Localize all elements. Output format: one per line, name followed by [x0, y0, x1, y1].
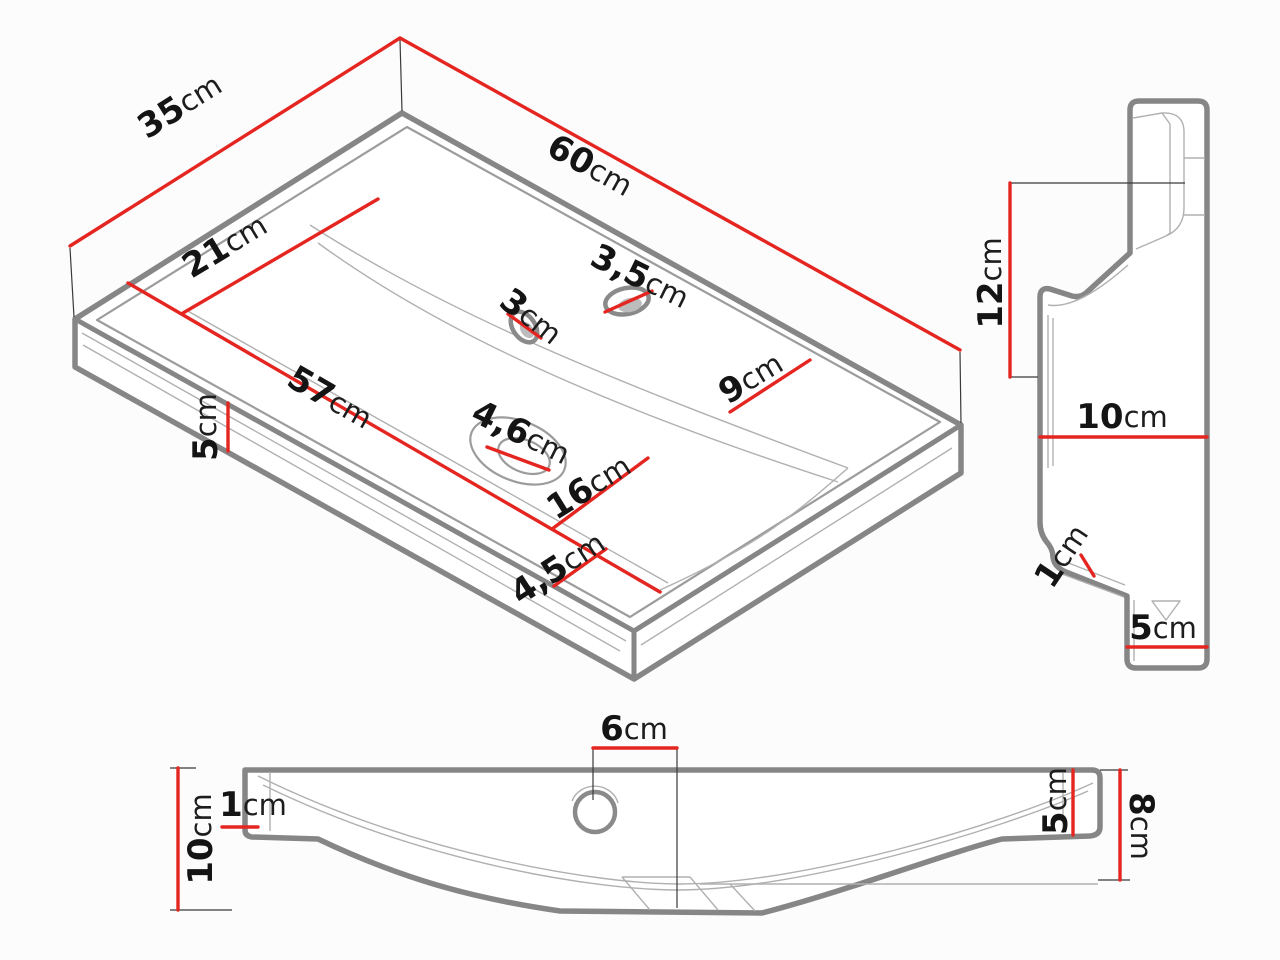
drawing-sheet: 35cm 60cm 21cm 57cm 5cm 3cm 3,5cm 9cm 4,…: [0, 0, 1280, 960]
dim-label-12cm: 12cm: [971, 237, 1011, 329]
dim-label-5cm-iso: 5cm: [186, 393, 226, 461]
dim-label-8cm: 8cm: [1121, 792, 1161, 860]
dim-label-5cm-front: 5cm: [1036, 767, 1076, 835]
dim-label-6cm: 6cm: [600, 709, 668, 749]
dim-label-1cm-front: 1cm: [219, 785, 287, 825]
front-faucet-hole: [575, 792, 615, 832]
dim-label-10cm-side: 10cm: [1076, 397, 1168, 437]
technical-drawing-canvas: 35cm 60cm 21cm 57cm 5cm 3cm 3,5cm 9cm 4,…: [0, 0, 1280, 960]
dim-label-10cm-front: 10cm: [181, 793, 221, 885]
dim-label-5cm-side: 5cm: [1129, 608, 1197, 648]
